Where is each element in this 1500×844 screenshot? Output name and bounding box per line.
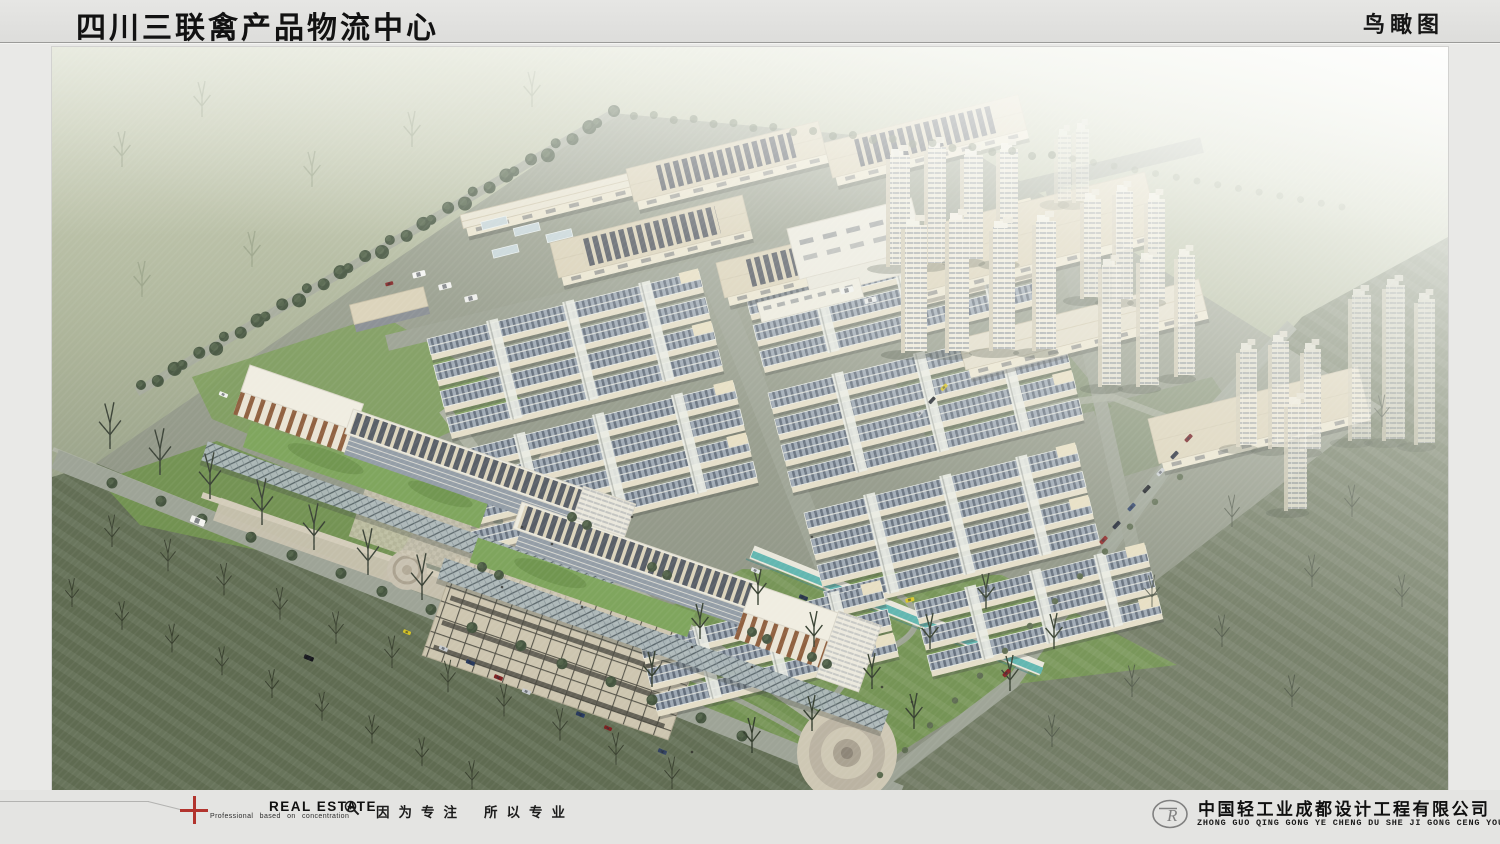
header-bar: 四川三联禽产品物流中心 鸟瞰图 bbox=[0, 0, 1500, 43]
magnifier-icon bbox=[344, 800, 361, 817]
slogan-right: 所以专业 bbox=[484, 805, 574, 820]
fog-overlay bbox=[52, 47, 1448, 790]
page-title: 四川三联禽产品物流中心 bbox=[76, 3, 439, 47]
svg-text:R: R bbox=[1166, 806, 1178, 825]
footer-bar: Professional based on concentration REAL… bbox=[0, 790, 1500, 844]
rendering-canvas bbox=[52, 47, 1448, 790]
company-logo: R bbox=[1150, 797, 1192, 833]
company-name: 中国轻工业成都设计工程有限公司 bbox=[1198, 795, 1491, 820]
company-pinyin: ZHONG GUO QING GONG YE CHENG DU SHE JI G… bbox=[1197, 818, 1500, 828]
presentation-board: 四川三联禽产品物流中心 鸟瞰图 bbox=[0, 0, 1500, 844]
birdseye-rendering bbox=[52, 47, 1448, 790]
brand-tagline: Professional based on concentration bbox=[210, 813, 349, 820]
company-slogan: 因为专注所以专业 bbox=[376, 801, 574, 821]
footer-rule-line bbox=[0, 801, 149, 802]
view-type-label: 鸟瞰图 bbox=[1363, 7, 1444, 39]
realestate-cross-icon bbox=[180, 796, 208, 824]
slogan-left: 因为专注 bbox=[376, 805, 466, 820]
